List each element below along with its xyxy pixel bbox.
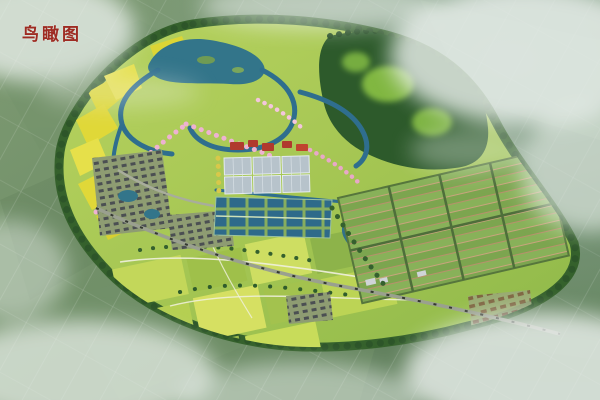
- rendering-canvas: [0, 0, 600, 400]
- aerial-rendering: 鸟瞰图: [0, 0, 600, 400]
- south-village: [286, 292, 333, 324]
- pond-grid: [214, 197, 332, 238]
- view-title-label: 鸟瞰图: [22, 20, 82, 45]
